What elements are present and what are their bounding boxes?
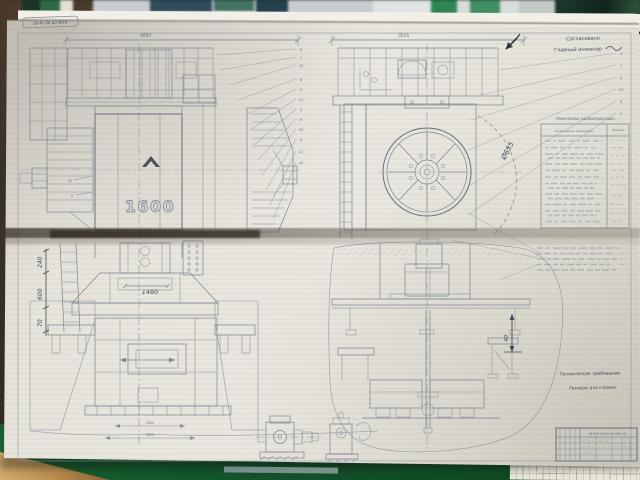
background-glass-green [214,0,254,11]
photo-of-drawing: 18-4г-24 до №16 4850 3515 [0,0,640,480]
fold-dirt-streak-soft [0,238,640,244]
fold-dirt-streak-dark [50,230,260,238]
